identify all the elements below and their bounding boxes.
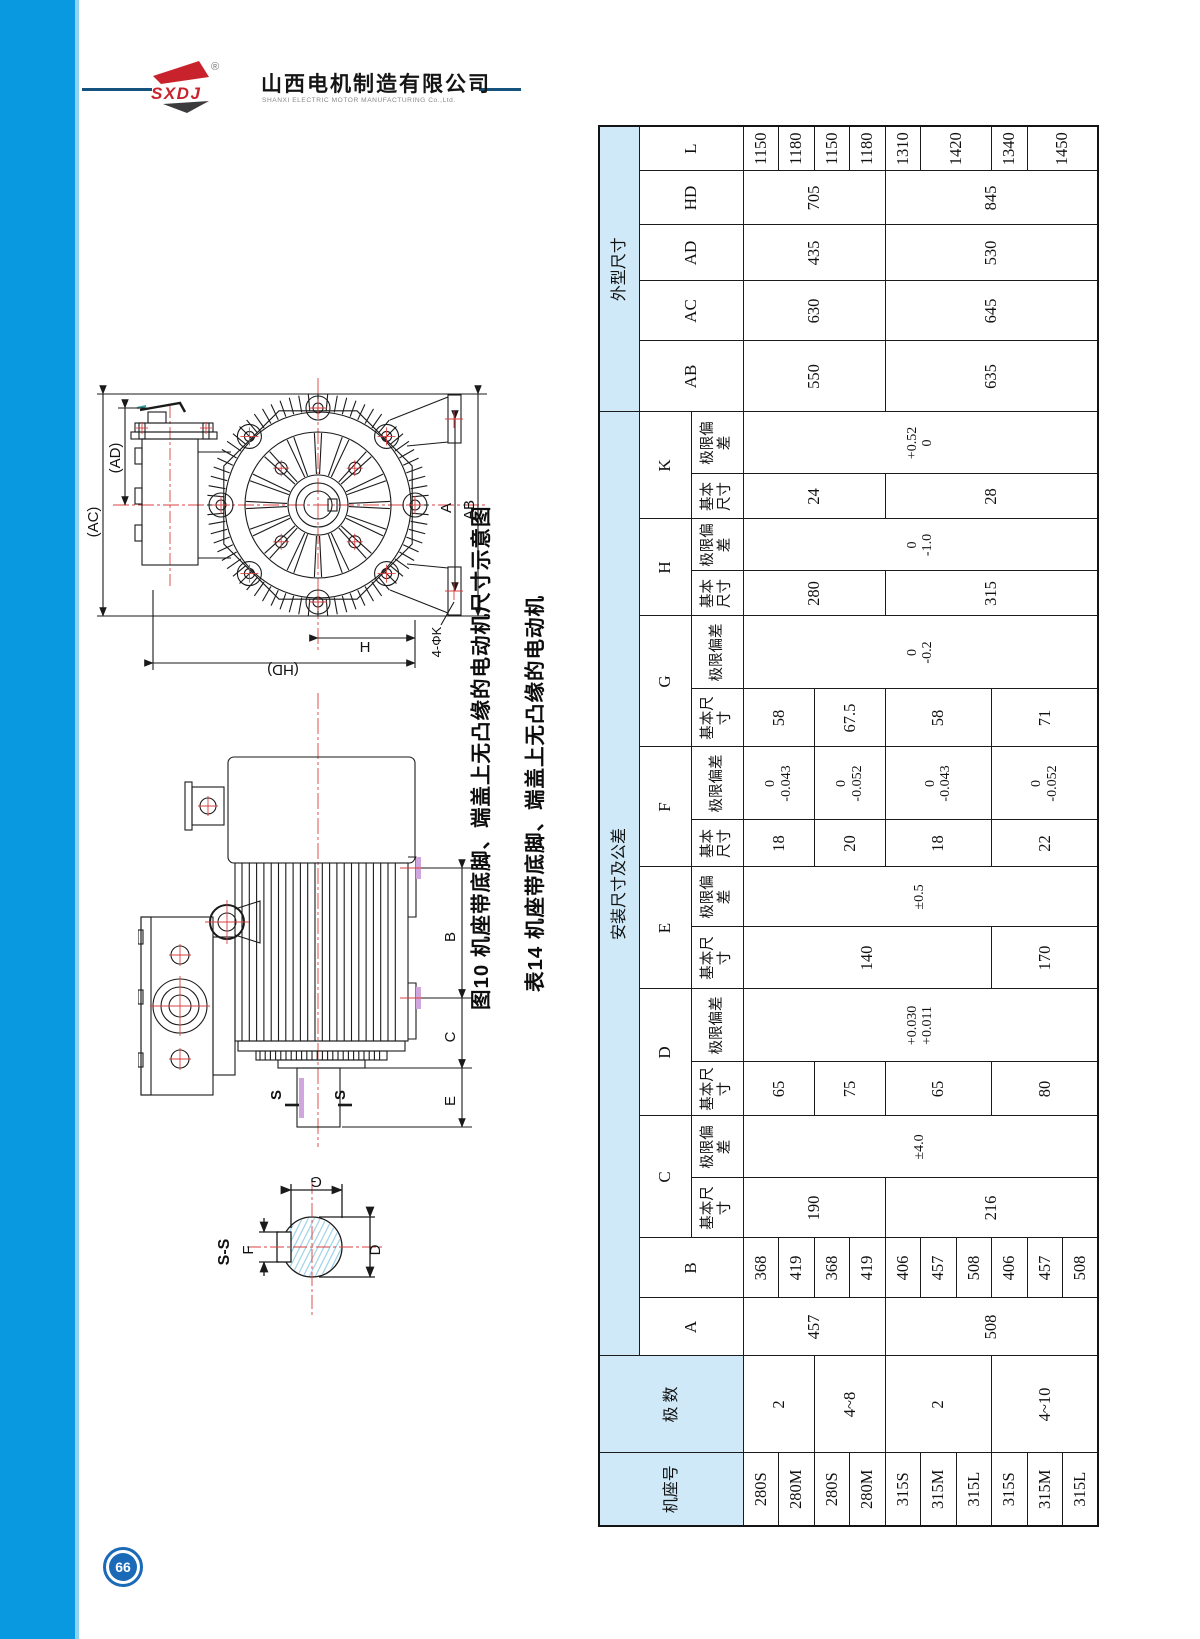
data-cell: 550	[743, 341, 885, 412]
data-cell: 24	[743, 474, 885, 519]
header-mount-group: 安装尺寸及公差	[599, 412, 639, 1356]
data-cell: 170	[992, 927, 1099, 989]
header-col-D: D	[639, 989, 691, 1116]
dim-label-ad: (AD)	[107, 443, 124, 474]
subheader-basic: 基本尺寸	[691, 1178, 743, 1238]
data-cell: 280S	[743, 1453, 779, 1526]
company-name-en: SHANXI ELECTRIC MOTOR MANUFACTURING Co.,…	[262, 97, 456, 104]
data-cell: 315S	[885, 1453, 921, 1526]
data-cell: 71	[992, 689, 1099, 747]
dim-label-d: D	[367, 1244, 384, 1255]
section-title: S-S	[216, 1238, 233, 1265]
data-cell: 0-0.043	[743, 747, 814, 820]
data-cell: 80	[992, 1062, 1099, 1116]
data-cell: 368	[814, 1238, 850, 1298]
data-cell: +0.520	[743, 412, 1098, 474]
data-cell: 58	[743, 689, 814, 747]
data-cell: 67.5	[814, 689, 885, 747]
data-cell: 845	[885, 171, 1098, 225]
header-col-H: H	[639, 519, 691, 616]
header-col-A: A	[639, 1298, 743, 1356]
page-number-badge: 66	[103, 1547, 143, 1587]
data-cell: 216	[885, 1178, 1098, 1238]
data-cell: 645	[885, 281, 1098, 341]
data-cell: 1180	[779, 126, 815, 171]
dim-label-4phik: 4-ΦK	[429, 626, 444, 657]
data-cell: 457	[1027, 1238, 1063, 1298]
subheader-tol: 极限偏差	[691, 519, 743, 571]
data-cell: 435	[743, 225, 885, 281]
dim-label-e: E	[442, 1096, 459, 1106]
dim-label-hd: (HD)	[267, 661, 299, 678]
header-col-L: L	[639, 126, 743, 171]
data-cell: 419	[850, 1238, 886, 1298]
subheader-tol: 极限偏差	[691, 1116, 743, 1178]
company-name-cn: 山西电机制造有限公司	[261, 68, 491, 98]
section-cut-s2: S	[332, 1090, 349, 1100]
data-cell: 0-0.052	[992, 747, 1099, 820]
header-col-G: G	[639, 616, 691, 747]
data-cell: 280M	[850, 1453, 886, 1526]
subheader-basic: 基本尺寸	[691, 1062, 743, 1116]
data-cell: 315L	[1063, 1453, 1099, 1526]
data-cell: ±0.5	[743, 867, 1098, 927]
logo-flag-shape	[153, 61, 209, 84]
header-col-AB: AB	[639, 341, 743, 412]
data-cell: 65	[743, 1062, 814, 1116]
subheader-tol: 极限偏差	[691, 616, 743, 689]
data-cell: 75	[814, 1062, 885, 1116]
data-cell: 315M	[1027, 1453, 1063, 1526]
subheader-basic: 基本尺寸	[691, 820, 743, 867]
data-cell: 508	[956, 1238, 992, 1298]
dim-label-b: B	[442, 932, 459, 942]
subheader-tol: 极限偏差	[691, 989, 743, 1062]
data-cell: 315M	[921, 1453, 957, 1526]
data-cell: 1450	[1027, 126, 1098, 171]
dim-label-g: G	[310, 1173, 322, 1190]
data-cell: 4~8	[814, 1356, 885, 1453]
data-cell: 4~10	[992, 1356, 1099, 1453]
data-cell: 28	[885, 474, 1098, 519]
data-cell: 280	[743, 571, 885, 616]
data-cell: 315S	[992, 1453, 1028, 1526]
data-cell: 1340	[992, 126, 1028, 171]
dim-label-c: C	[442, 1031, 459, 1042]
data-cell: 190	[743, 1178, 885, 1238]
spec-table-rotated-region: 机座号极 数安装尺寸及公差外型尺寸ABCDEFGHKABACADHDL基本尺寸极…	[598, 127, 1098, 1527]
brand-logo: SXDJ ®	[145, 58, 249, 114]
data-cell: 20	[814, 820, 885, 867]
data-cell: 406	[992, 1238, 1028, 1298]
data-cell: 2	[885, 1356, 992, 1453]
section-cut-s1: S	[268, 1090, 285, 1100]
data-cell: 368	[743, 1238, 779, 1298]
data-cell: 457	[921, 1238, 957, 1298]
registered-mark-icon: ®	[211, 61, 219, 73]
subheader-basic: 基本尺寸	[691, 927, 743, 989]
header-col-C: C	[639, 1116, 691, 1238]
header-col-K: K	[639, 412, 691, 519]
dim-label-a: A	[438, 503, 455, 513]
sidebar-edge	[75, 0, 79, 1639]
header-frame: 机座号	[599, 1453, 743, 1526]
data-cell: 0-0.052	[814, 747, 885, 820]
data-cell: 457	[743, 1298, 885, 1356]
subheader-basic: 基本尺寸	[691, 474, 743, 519]
data-cell: 0-0.043	[885, 747, 992, 820]
side-view-drawing: B C E S S	[138, 685, 498, 1225]
subheader-tol: 极限偏差	[691, 747, 743, 820]
data-cell: 140	[743, 927, 992, 989]
page-number: 66	[115, 1559, 131, 1575]
data-cell: 1310	[885, 126, 921, 171]
data-cell: 1180	[850, 126, 886, 171]
data-cell: ±4.0	[743, 1116, 1098, 1178]
subheader-basic: 基本尺寸	[691, 689, 743, 747]
data-cell: 530	[885, 225, 1098, 281]
data-cell: 1150	[743, 126, 779, 171]
shaft-section-drawing: S-S G D F	[215, 1170, 390, 1340]
data-cell: 315	[885, 571, 1098, 616]
data-cell: 406	[885, 1238, 921, 1298]
dim-label-ac: (AC)	[85, 507, 102, 538]
header-col-HD: HD	[639, 171, 743, 225]
data-cell: 1420	[921, 126, 992, 171]
header-col-E: E	[639, 867, 691, 989]
end-view-drawing: (AC) (AD) A AB H (HD) 4-ΦK	[85, 350, 505, 685]
figure-caption-text: 图10 机座带底脚、端盖上无凸缘的电动机尺寸示意图	[464, 545, 498, 1010]
data-cell: 705	[743, 171, 885, 225]
data-cell: 508	[1063, 1238, 1099, 1298]
header-col-AD: AD	[639, 225, 743, 281]
header-col-B: B	[639, 1238, 743, 1298]
data-cell: 280S	[814, 1453, 850, 1526]
data-cell: 315L	[956, 1453, 992, 1526]
data-cell: 0-0.2	[743, 616, 1098, 689]
data-cell: 280M	[779, 1453, 815, 1526]
table-caption-text: 表14 机座带底脚、端盖上无凸缘的电动机	[518, 592, 552, 992]
data-cell: 419	[779, 1238, 815, 1298]
data-cell: 18	[885, 820, 992, 867]
data-cell: 635	[885, 341, 1098, 412]
data-cell: 630	[743, 281, 885, 341]
data-cell: 65	[885, 1062, 992, 1116]
subheader-basic: 基本尺寸	[691, 571, 743, 616]
catalog-page: SXDJ ® 山西电机制造有限公司 SHANXI ELECTRIC MOTOR …	[0, 0, 1200, 1639]
data-cell: 0-1.0	[743, 519, 1098, 571]
data-cell: 22	[992, 820, 1099, 867]
subheader-tol: 极限偏差	[691, 867, 743, 927]
header-col-AC: AC	[639, 281, 743, 341]
header-col-F: F	[639, 747, 691, 867]
header-outline-group: 外型尺寸	[599, 126, 639, 412]
figure-caption: 图10 机座带底脚、端盖上无凸缘的电动机尺寸示意图	[464, 545, 500, 1010]
spec-table: 机座号极 数安装尺寸及公差外型尺寸ABCDEFGHKABACADHDL基本尺寸极…	[598, 125, 1099, 1527]
header-poles: 极 数	[599, 1356, 743, 1453]
data-cell: +0.030+0.011	[743, 989, 1098, 1062]
subheader-tol: 极限偏差	[691, 412, 743, 474]
data-cell: 1150	[814, 126, 850, 171]
data-cell: 58	[885, 689, 992, 747]
logo-brand-text: SXDJ	[151, 84, 201, 103]
sidebar-bar	[0, 0, 75, 1639]
data-cell: 18	[743, 820, 814, 867]
table-caption: 表14 机座带底脚、端盖上无凸缘的电动机	[518, 592, 554, 992]
dim-label-h: H	[360, 639, 371, 656]
dim-label-f: F	[240, 1245, 257, 1254]
data-cell: 508	[885, 1298, 1098, 1356]
header-rule-left	[82, 88, 152, 91]
data-cell: 2	[743, 1356, 814, 1453]
